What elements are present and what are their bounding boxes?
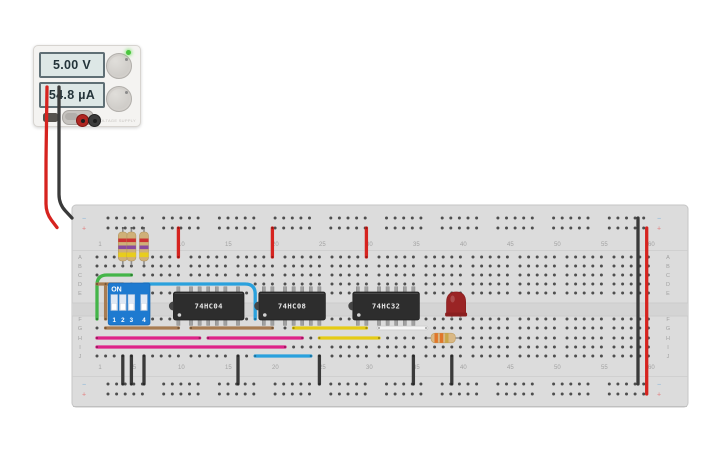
breadboard-hole[interactable]: [506, 337, 509, 340]
rail-hole[interactable]: [188, 383, 191, 386]
breadboard-hole[interactable]: [237, 265, 240, 268]
breadboard-hole[interactable]: [536, 265, 539, 268]
breadboard-hole[interactable]: [480, 337, 483, 340]
dip-switch[interactable]: ON1234: [108, 283, 150, 325]
breadboard-hole[interactable]: [497, 318, 500, 321]
breadboard-hole[interactable]: [583, 265, 586, 268]
breadboard-hole[interactable]: [104, 265, 107, 268]
breadboard-hole[interactable]: [198, 274, 201, 277]
breadboard-hole[interactable]: [339, 346, 342, 349]
breadboard-hole[interactable]: [553, 292, 556, 295]
rail-hole[interactable]: [188, 227, 191, 230]
rail-hole[interactable]: [107, 383, 110, 386]
breadboard-hole[interactable]: [348, 265, 351, 268]
breadboard-hole[interactable]: [403, 346, 406, 349]
breadboard-hole[interactable]: [403, 355, 406, 358]
breadboard-hole[interactable]: [245, 292, 248, 295]
breadboard-hole[interactable]: [591, 283, 594, 286]
rail-hole[interactable]: [419, 217, 422, 220]
rail-hole[interactable]: [141, 217, 144, 220]
rail-hole[interactable]: [505, 393, 508, 396]
breadboard-hole[interactable]: [450, 327, 453, 330]
breadboard-hole[interactable]: [331, 283, 334, 286]
breadboard-hole[interactable]: [574, 318, 577, 321]
rail-hole[interactable]: [132, 227, 135, 230]
rail-hole[interactable]: [531, 217, 534, 220]
rail-hole[interactable]: [385, 217, 388, 220]
breadboard-hole[interactable]: [207, 355, 210, 358]
rail-hole[interactable]: [616, 217, 619, 220]
rail-hole[interactable]: [394, 217, 397, 220]
rail-hole[interactable]: [364, 393, 367, 396]
breadboard-hole[interactable]: [301, 256, 304, 259]
breadboard-hole[interactable]: [151, 318, 154, 321]
rail-hole[interactable]: [299, 227, 302, 230]
breadboard-hole[interactable]: [386, 283, 389, 286]
breadboard-hole[interactable]: [497, 327, 500, 330]
breadboard-hole[interactable]: [151, 355, 154, 358]
breadboard-hole[interactable]: [583, 274, 586, 277]
breadboard-hole[interactable]: [527, 274, 530, 277]
breadboard-hole[interactable]: [425, 256, 428, 259]
rail-hole[interactable]: [197, 393, 200, 396]
rail-hole[interactable]: [162, 393, 165, 396]
breadboard-hole[interactable]: [519, 327, 522, 330]
rail-hole[interactable]: [107, 217, 110, 220]
rail-hole[interactable]: [522, 393, 525, 396]
rail-hole[interactable]: [578, 217, 581, 220]
rail-hole[interactable]: [616, 383, 619, 386]
breadboard-hole[interactable]: [442, 283, 445, 286]
breadboard-hole[interactable]: [519, 318, 522, 321]
breadboard-hole[interactable]: [497, 355, 500, 358]
breadboard-hole[interactable]: [450, 283, 453, 286]
breadboard-hole[interactable]: [480, 265, 483, 268]
breadboard-hole[interactable]: [574, 355, 577, 358]
rail-hole[interactable]: [394, 383, 397, 386]
breadboard-hole[interactable]: [395, 274, 398, 277]
rail-hole[interactable]: [282, 383, 285, 386]
breadboard-hole[interactable]: [168, 355, 171, 358]
breadboard-hole[interactable]: [168, 265, 171, 268]
breadboard-hole[interactable]: [331, 265, 334, 268]
breadboard-hole[interactable]: [96, 265, 99, 268]
rail-hole[interactable]: [162, 217, 165, 220]
rail-hole[interactable]: [308, 393, 311, 396]
breadboard-hole[interactable]: [96, 355, 99, 358]
breadboard-hole[interactable]: [318, 274, 321, 277]
rail-hole[interactable]: [338, 383, 341, 386]
breadboard-hole[interactable]: [403, 256, 406, 259]
breadboard-hole[interactable]: [309, 337, 312, 340]
breadboard-hole[interactable]: [544, 283, 547, 286]
breadboard-hole[interactable]: [613, 265, 616, 268]
rail-hole[interactable]: [569, 217, 572, 220]
ic-74hc04[interactable]: 74HC04: [169, 287, 244, 326]
breadboard-hole[interactable]: [544, 337, 547, 340]
breadboard-hole[interactable]: [527, 355, 530, 358]
breadboard-hole[interactable]: [386, 337, 389, 340]
breadboard-hole[interactable]: [489, 283, 492, 286]
rail-hole[interactable]: [569, 393, 572, 396]
breadboard-hole[interactable]: [318, 256, 321, 259]
breadboard-hole[interactable]: [331, 274, 334, 277]
rail-hole[interactable]: [552, 217, 555, 220]
rail-hole[interactable]: [467, 227, 470, 230]
breadboard-hole[interactable]: [348, 355, 351, 358]
led-red[interactable]: [445, 292, 467, 320]
breadboard-hole[interactable]: [224, 274, 227, 277]
breadboard-hole[interactable]: [177, 265, 180, 268]
rail-hole[interactable]: [179, 393, 182, 396]
rail-hole[interactable]: [634, 217, 637, 220]
breadboard-hole[interactable]: [151, 292, 154, 295]
breadboard-hole[interactable]: [621, 256, 624, 259]
breadboard-hole[interactable]: [591, 318, 594, 321]
breadboard-hole[interactable]: [600, 292, 603, 295]
breadboard-hole[interactable]: [574, 265, 577, 268]
breadboard-hole[interactable]: [245, 318, 248, 321]
breadboard-hole[interactable]: [365, 265, 368, 268]
breadboard-hole[interactable]: [403, 265, 406, 268]
dip-slider-handle[interactable]: [129, 303, 134, 310]
breadboard-hole[interactable]: [442, 327, 445, 330]
breadboard-hole[interactable]: [480, 256, 483, 259]
breadboard-hole[interactable]: [425, 346, 428, 349]
rail-hole[interactable]: [625, 227, 628, 230]
breadboard-hole[interactable]: [613, 283, 616, 286]
breadboard-hole[interactable]: [237, 256, 240, 259]
rail-hole[interactable]: [587, 217, 590, 220]
dip-slider-handle[interactable]: [142, 303, 147, 310]
breadboard-hole[interactable]: [160, 318, 163, 321]
breadboard-hole[interactable]: [566, 256, 569, 259]
breadboard-hole[interactable]: [600, 355, 603, 358]
rail-hole[interactable]: [625, 217, 628, 220]
breadboard-hole[interactable]: [160, 355, 163, 358]
breadboard-hole[interactable]: [506, 265, 509, 268]
breadboard-hole[interactable]: [442, 256, 445, 259]
breadboard-hole[interactable]: [480, 274, 483, 277]
rail-hole[interactable]: [252, 393, 255, 396]
breadboard-hole[interactable]: [506, 274, 509, 277]
rail-hole[interactable]: [252, 383, 255, 386]
rail-hole[interactable]: [496, 217, 499, 220]
breadboard-hole[interactable]: [553, 346, 556, 349]
breadboard-hole[interactable]: [566, 283, 569, 286]
breadboard-hole[interactable]: [472, 327, 475, 330]
rail-hole[interactable]: [171, 383, 174, 386]
breadboard-hole[interactable]: [403, 274, 406, 277]
breadboard-hole[interactable]: [489, 327, 492, 330]
rail-hole[interactable]: [505, 227, 508, 230]
breadboard-hole[interactable]: [613, 327, 616, 330]
breadboard-hole[interactable]: [151, 274, 154, 277]
breadboard-hole[interactable]: [574, 256, 577, 259]
breadboard-hole[interactable]: [339, 283, 342, 286]
rail-hole[interactable]: [308, 227, 311, 230]
breadboard-hole[interactable]: [553, 256, 556, 259]
rail-hole[interactable]: [244, 383, 247, 386]
breadboard-hole[interactable]: [600, 337, 603, 340]
breadboard-hole[interactable]: [480, 327, 483, 330]
rail-hole[interactable]: [496, 383, 499, 386]
rail-hole[interactable]: [608, 227, 611, 230]
breadboard-hole[interactable]: [254, 256, 257, 259]
rail-hole[interactable]: [449, 217, 452, 220]
breadboard-hole[interactable]: [442, 318, 445, 321]
breadboard-hole[interactable]: [591, 292, 594, 295]
breadboard-hole[interactable]: [613, 346, 616, 349]
breadboard-hole[interactable]: [480, 346, 483, 349]
breadboard-hole[interactable]: [583, 355, 586, 358]
rail-hole[interactable]: [338, 227, 341, 230]
breadboard-hole[interactable]: [412, 256, 415, 259]
breadboard-hole[interactable]: [433, 283, 436, 286]
breadboard-hole[interactable]: [497, 337, 500, 340]
breadboard-hole[interactable]: [489, 337, 492, 340]
breadboard-hole[interactable]: [600, 265, 603, 268]
breadboard-hole[interactable]: [574, 346, 577, 349]
breadboard-hole[interactable]: [566, 327, 569, 330]
rail-hole[interactable]: [449, 393, 452, 396]
breadboard-hole[interactable]: [591, 327, 594, 330]
breadboard-hole[interactable]: [151, 265, 154, 268]
rail-hole[interactable]: [385, 227, 388, 230]
rail-hole[interactable]: [218, 227, 221, 230]
rail-hole[interactable]: [171, 393, 174, 396]
rail-hole[interactable]: [218, 383, 221, 386]
breadboard-hole[interactable]: [553, 265, 556, 268]
breadboard-hole[interactable]: [284, 274, 287, 277]
breadboard-hole[interactable]: [254, 265, 257, 268]
rail-hole[interactable]: [218, 393, 221, 396]
ic-74hc32[interactable]: 74HC32: [348, 287, 419, 326]
dip-slider-handle[interactable]: [120, 303, 125, 310]
breadboard-hole[interactable]: [536, 346, 539, 349]
rail-hole[interactable]: [179, 383, 182, 386]
rail-hole[interactable]: [496, 227, 499, 230]
rail-hole[interactable]: [514, 217, 517, 220]
rail-hole[interactable]: [531, 227, 534, 230]
breadboard-hole[interactable]: [553, 318, 556, 321]
breadboard-hole[interactable]: [600, 256, 603, 259]
rail-hole[interactable]: [458, 383, 461, 386]
rail-hole[interactable]: [634, 393, 637, 396]
rail-hole[interactable]: [552, 227, 555, 230]
breadboard-hole[interactable]: [348, 274, 351, 277]
breadboard-hole[interactable]: [450, 265, 453, 268]
breadboard-hole[interactable]: [378, 256, 381, 259]
breadboard-hole[interactable]: [224, 256, 227, 259]
breadboard-hole[interactable]: [301, 346, 304, 349]
breadboard-hole[interactable]: [348, 256, 351, 259]
rail-hole[interactable]: [124, 217, 127, 220]
rail-hole[interactable]: [291, 383, 294, 386]
breadboard-hole[interactable]: [198, 265, 201, 268]
breadboard-hole[interactable]: [442, 355, 445, 358]
rail-hole[interactable]: [625, 383, 628, 386]
breadboard-hole[interactable]: [506, 292, 509, 295]
rail-hole[interactable]: [616, 227, 619, 230]
breadboard-hole[interactable]: [378, 355, 381, 358]
breadboard-hole[interactable]: [348, 346, 351, 349]
breadboard-hole[interactable]: [497, 265, 500, 268]
rail-hole[interactable]: [608, 393, 611, 396]
breadboard-hole[interactable]: [113, 256, 116, 259]
breadboard-hole[interactable]: [207, 265, 210, 268]
breadboard-hole[interactable]: [566, 337, 569, 340]
breadboard-hole[interactable]: [190, 256, 193, 259]
breadboard-hole[interactable]: [425, 355, 428, 358]
breadboard-hole[interactable]: [459, 274, 462, 277]
breadboard-hole[interactable]: [245, 256, 248, 259]
breadboard-hole[interactable]: [386, 274, 389, 277]
breadboard-hole[interactable]: [630, 318, 633, 321]
breadboard-hole[interactable]: [506, 256, 509, 259]
rail-hole[interactable]: [385, 383, 388, 386]
rail-hole[interactable]: [522, 217, 525, 220]
breadboard-hole[interactable]: [527, 283, 530, 286]
breadboard-hole[interactable]: [583, 256, 586, 259]
breadboard-hole[interactable]: [544, 327, 547, 330]
rail-hole[interactable]: [274, 393, 277, 396]
breadboard-hole[interactable]: [412, 283, 415, 286]
breadboard-hole[interactable]: [527, 256, 530, 259]
rail-hole[interactable]: [291, 393, 294, 396]
rail-hole[interactable]: [338, 217, 341, 220]
breadboard-hole[interactable]: [386, 346, 389, 349]
breadboard-hole[interactable]: [262, 283, 265, 286]
breadboard-hole[interactable]: [630, 256, 633, 259]
rail-hole[interactable]: [522, 227, 525, 230]
breadboard-hole[interactable]: [450, 274, 453, 277]
breadboard-hole[interactable]: [613, 337, 616, 340]
breadboard-hole[interactable]: [262, 274, 265, 277]
breadboard-hole[interactable]: [621, 274, 624, 277]
breadboard-hole[interactable]: [271, 283, 274, 286]
rail-hole[interactable]: [531, 393, 534, 396]
breadboard-hole[interactable]: [433, 274, 436, 277]
breadboard-hole[interactable]: [395, 355, 398, 358]
breadboard-hole[interactable]: [591, 346, 594, 349]
breadboard-hole[interactable]: [168, 292, 171, 295]
breadboard-hole[interactable]: [331, 355, 334, 358]
breadboard-hole[interactable]: [160, 274, 163, 277]
breadboard-hole[interactable]: [472, 256, 475, 259]
breadboard-hole[interactable]: [331, 292, 334, 295]
rail-hole[interactable]: [347, 227, 350, 230]
breadboard-hole[interactable]: [318, 283, 321, 286]
breadboard-hole[interactable]: [536, 283, 539, 286]
breadboard-hole[interactable]: [459, 355, 462, 358]
breadboard-hole[interactable]: [190, 274, 193, 277]
breadboard-hole[interactable]: [583, 318, 586, 321]
breadboard-hole[interactable]: [621, 346, 624, 349]
rail-hole[interactable]: [347, 393, 350, 396]
rail-hole[interactable]: [347, 217, 350, 220]
breadboard-hole[interactable]: [489, 274, 492, 277]
rail-hole[interactable]: [197, 217, 200, 220]
breadboard-hole[interactable]: [519, 355, 522, 358]
breadboard-hole[interactable]: [583, 337, 586, 340]
breadboard-hole[interactable]: [425, 318, 428, 321]
rail-hole[interactable]: [115, 217, 118, 220]
breadboard-hole[interactable]: [215, 355, 218, 358]
rail-hole[interactable]: [467, 393, 470, 396]
rail-hole[interactable]: [124, 227, 127, 230]
rail-hole[interactable]: [475, 227, 478, 230]
breadboard-hole[interactable]: [566, 292, 569, 295]
rail-hole[interactable]: [561, 383, 564, 386]
rail-hole[interactable]: [394, 227, 397, 230]
rail-hole[interactable]: [475, 217, 478, 220]
rail-hole[interactable]: [625, 393, 628, 396]
rail-hole[interactable]: [235, 217, 238, 220]
rail-hole[interactable]: [274, 227, 277, 230]
breadboard-hole[interactable]: [506, 346, 509, 349]
breadboard-hole[interactable]: [583, 346, 586, 349]
breadboard-hole[interactable]: [433, 256, 436, 259]
breadboard-hole[interactable]: [386, 256, 389, 259]
breadboard-hole[interactable]: [96, 274, 99, 277]
breadboard-hole[interactable]: [412, 337, 415, 340]
rail-hole[interactable]: [218, 217, 221, 220]
breadboard-hole[interactable]: [356, 256, 359, 259]
breadboard-hole[interactable]: [621, 327, 624, 330]
breadboard-hole[interactable]: [356, 274, 359, 277]
rail-hole[interactable]: [171, 227, 174, 230]
breadboard-hole[interactable]: [262, 256, 265, 259]
rail-hole[interactable]: [514, 383, 517, 386]
rail-hole[interactable]: [227, 383, 230, 386]
breadboard-hole[interactable]: [544, 292, 547, 295]
breadboard-hole[interactable]: [630, 327, 633, 330]
breadboard-hole[interactable]: [621, 292, 624, 295]
breadboard-hole[interactable]: [544, 346, 547, 349]
rail-hole[interactable]: [329, 227, 332, 230]
rail-hole[interactable]: [235, 227, 238, 230]
breadboard-hole[interactable]: [104, 355, 107, 358]
rail-hole[interactable]: [274, 383, 277, 386]
breadboard-hole[interactable]: [591, 274, 594, 277]
breadboard-hole[interactable]: [472, 318, 475, 321]
rail-hole[interactable]: [569, 383, 572, 386]
breadboard-hole[interactable]: [284, 283, 287, 286]
breadboard-hole[interactable]: [459, 327, 462, 330]
rail-hole[interactable]: [561, 217, 564, 220]
rail-hole[interactable]: [402, 217, 405, 220]
breadboard-hole[interactable]: [301, 283, 304, 286]
breadboard-hole[interactable]: [198, 355, 201, 358]
breadboard-hole[interactable]: [621, 265, 624, 268]
breadboard-hole[interactable]: [292, 265, 295, 268]
breadboard-hole[interactable]: [600, 346, 603, 349]
breadboard-hole[interactable]: [433, 265, 436, 268]
breadboard-hole[interactable]: [433, 292, 436, 295]
breadboard-hole[interactable]: [425, 283, 428, 286]
rail-hole[interactable]: [441, 383, 444, 386]
breadboard-hole[interactable]: [331, 318, 334, 321]
breadboard-hole[interactable]: [412, 265, 415, 268]
breadboard-hole[interactable]: [433, 355, 436, 358]
rail-hole[interactable]: [244, 217, 247, 220]
breadboard-hole[interactable]: [450, 256, 453, 259]
rail-hole[interactable]: [227, 217, 230, 220]
rail-hole[interactable]: [531, 383, 534, 386]
breadboard-hole[interactable]: [519, 292, 522, 295]
breadboard-hole[interactable]: [433, 318, 436, 321]
